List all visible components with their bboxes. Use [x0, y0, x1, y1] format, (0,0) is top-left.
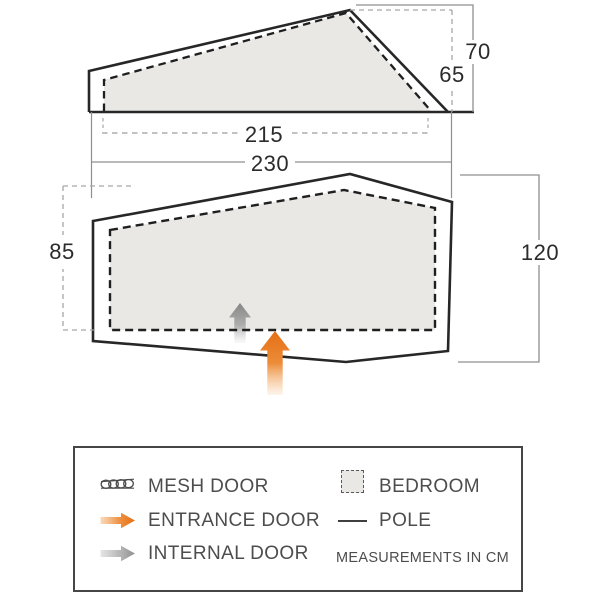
- bedroom-icon: [341, 470, 364, 493]
- legend-note-measurements: MEASUREMENTS IN CM: [336, 550, 509, 566]
- mesh-door-icon: [100, 477, 135, 490]
- entrance-door-icon: [100, 512, 136, 529]
- dim-120-bracket: [458, 175, 539, 362]
- legend-label-bedroom: BEDROOM: [379, 476, 480, 497]
- legend: MESH DOOR ENTRANCE DOOR INT: [73, 446, 523, 592]
- tent-diagrams: 70 65 215 230: [0, 0, 600, 440]
- dim-120-label: 120: [521, 240, 559, 265]
- entrance-door-arrow-icon: [260, 331, 290, 395]
- dim-215-label: 215: [245, 122, 283, 147]
- legend-label-mesh-door: MESH DOOR: [148, 476, 269, 497]
- legend-label-pole: POLE: [379, 510, 431, 531]
- legend-label-internal-door: INTERNAL DOOR: [148, 543, 309, 564]
- side-view-diagram: 70 65 215 230: [89, 5, 495, 198]
- tent-spec-diagram: 70 65 215 230: [0, 0, 600, 600]
- bedroom-area-fill: [110, 190, 435, 330]
- dim-70-label: 70: [465, 39, 490, 64]
- internal-door-icon: [100, 545, 136, 562]
- pole-icon: [338, 520, 367, 522]
- floor-plan-diagram: 85 120: [45, 174, 564, 395]
- dim-65-label: 65: [439, 62, 464, 87]
- dim-85-label: 85: [49, 239, 74, 264]
- legend-label-entrance-door: ENTRANCE DOOR: [148, 510, 320, 531]
- side-view-inner-fill: [104, 13, 431, 111]
- dim-230-label: 230: [251, 151, 289, 176]
